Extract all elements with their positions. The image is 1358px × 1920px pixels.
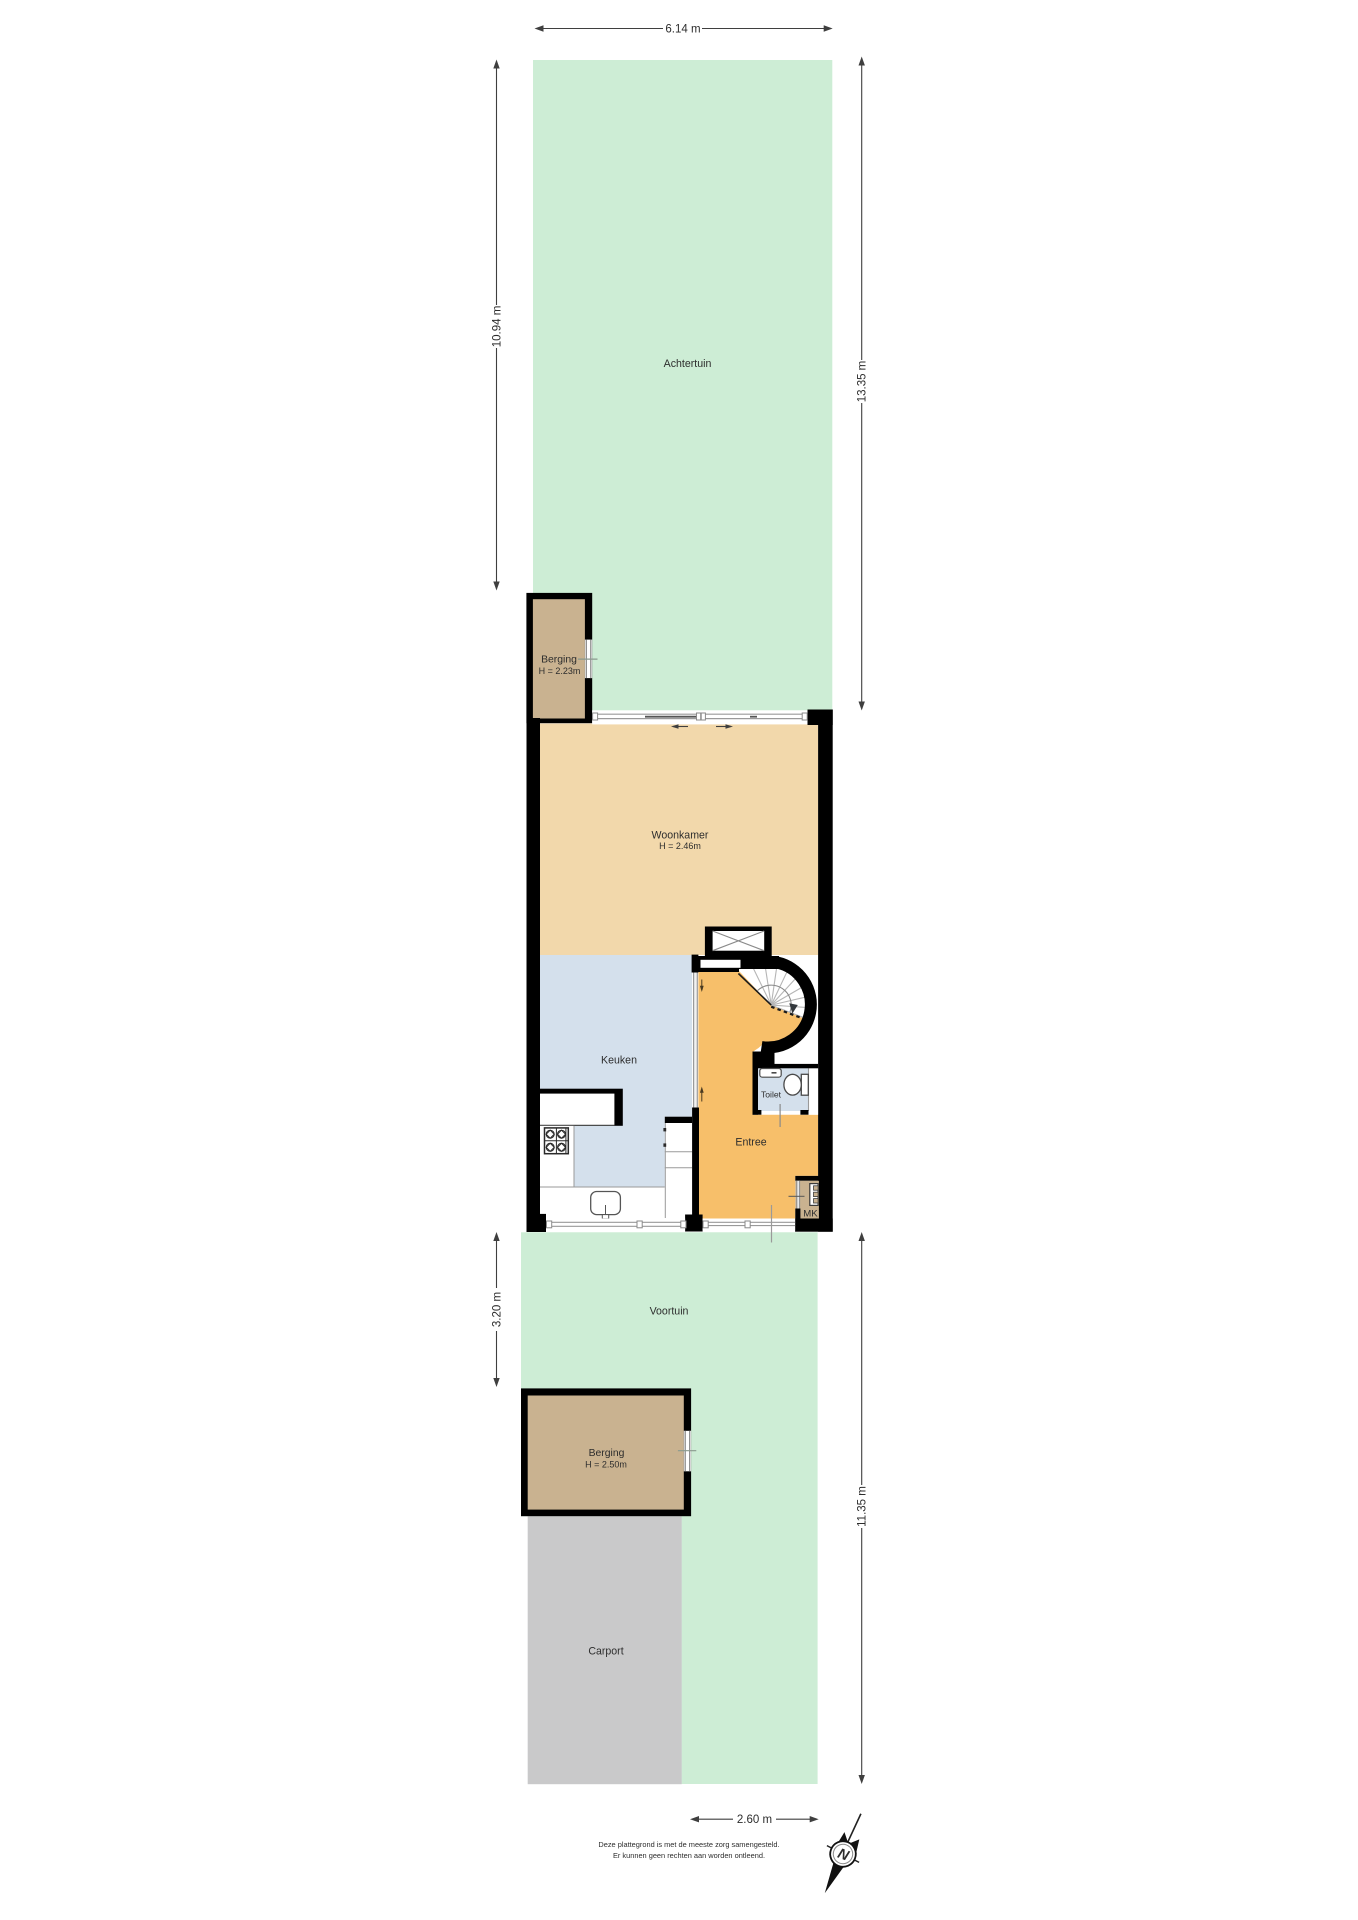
svg-text:Voortuin: Voortuin <box>650 1306 689 1318</box>
svg-text:Carport: Carport <box>588 1646 623 1658</box>
svg-text:13.35 m: 13.35 m <box>857 361 869 403</box>
svg-text:Er kunnen geen rechten aan wor: Er kunnen geen rechten aan worden ontlee… <box>613 1851 765 1860</box>
svg-text:Achtertuin: Achtertuin <box>664 358 712 370</box>
svg-text:Berging: Berging <box>541 655 577 666</box>
svg-text:H = 2.23m: H = 2.23m <box>539 666 581 676</box>
svg-text:Woonkamer: Woonkamer <box>652 830 709 842</box>
svg-text:6.14 m: 6.14 m <box>665 24 700 36</box>
svg-text:Deze plattegrond is met de mee: Deze plattegrond is met de meeste zorg s… <box>598 1840 779 1849</box>
svg-text:Toilet: Toilet <box>761 1089 782 1099</box>
svg-text:10.94 m: 10.94 m <box>492 306 504 348</box>
svg-text:2.60 m: 2.60 m <box>737 1814 772 1826</box>
svg-text:H = 2.46m: H = 2.46m <box>659 841 701 851</box>
svg-text:11.35 m: 11.35 m <box>857 1486 869 1527</box>
svg-text:Keuken: Keuken <box>601 1055 637 1067</box>
svg-text:MK: MK <box>803 1209 818 1220</box>
svg-text:Berging: Berging <box>589 1448 625 1459</box>
svg-text:Entree: Entree <box>735 1137 766 1149</box>
svg-text:3.20 m: 3.20 m <box>492 1292 504 1327</box>
svg-text:H = 2.50m: H = 2.50m <box>585 1460 627 1470</box>
